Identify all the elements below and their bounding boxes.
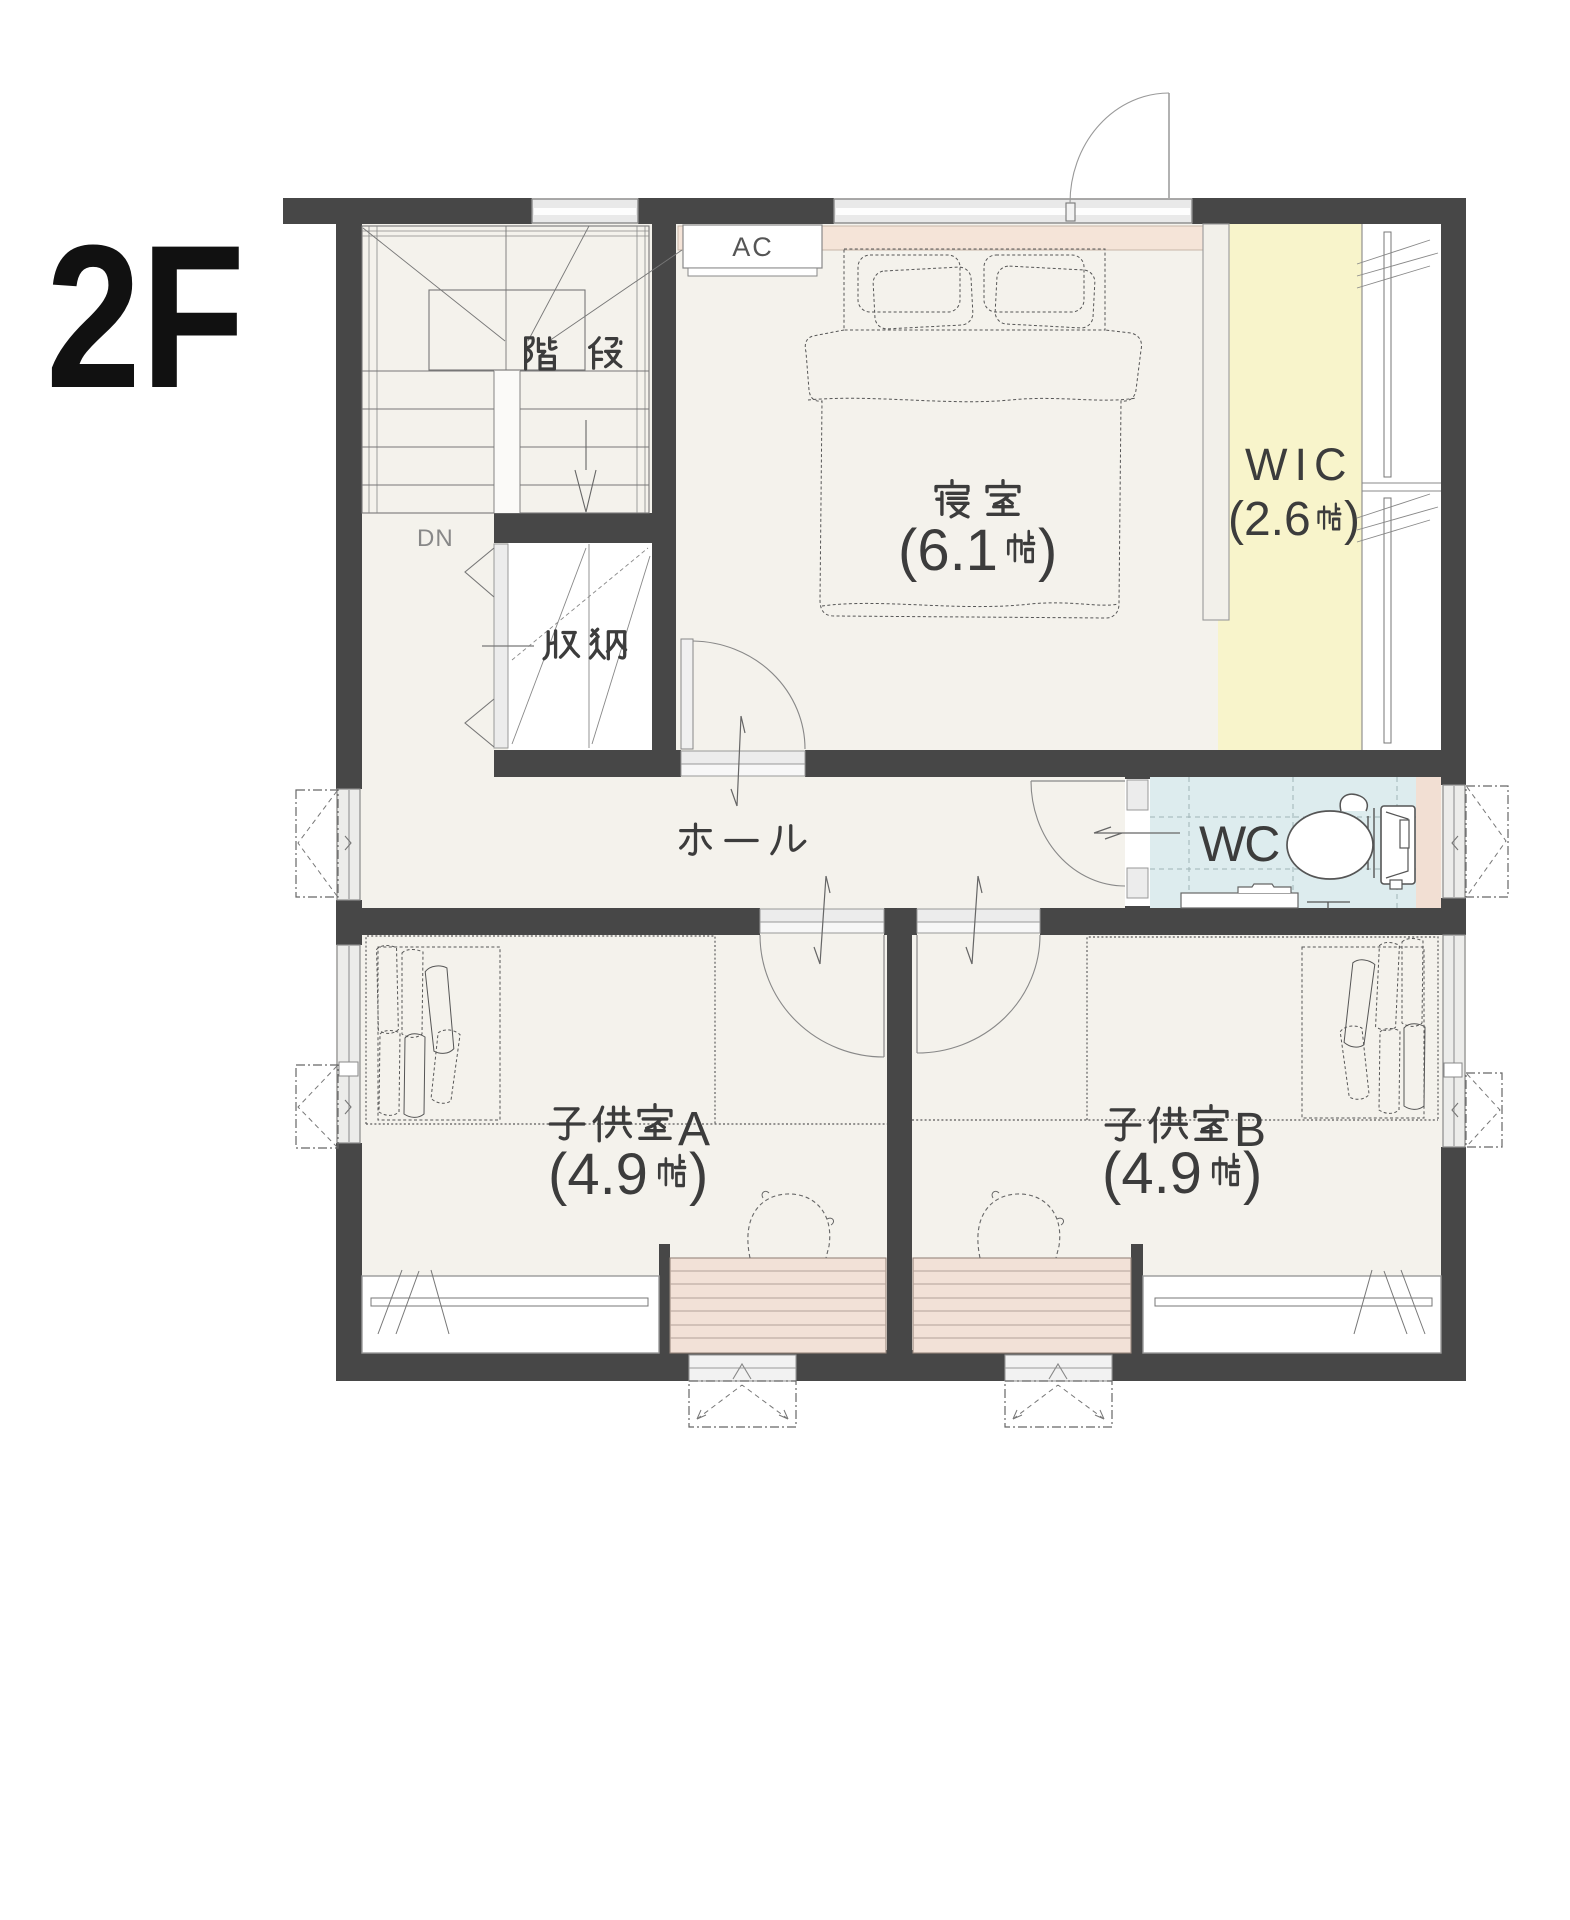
svg-text:(4.9: (4.9 xyxy=(548,1142,648,1207)
svg-text:): ) xyxy=(1243,1141,1262,1206)
svg-text:WIC: WIC xyxy=(1245,439,1353,490)
svg-text:(6.1: (6.1 xyxy=(898,518,998,583)
svg-text:): ) xyxy=(1038,518,1057,583)
svg-text:DN: DN xyxy=(417,525,454,552)
svg-text:): ) xyxy=(1344,493,1360,546)
svg-text:AC: AC xyxy=(732,232,774,262)
svg-text:): ) xyxy=(689,1142,708,1207)
svg-text:(2.6: (2.6 xyxy=(1228,493,1311,546)
svg-text:2F: 2F xyxy=(46,203,245,431)
svg-text:(4.9: (4.9 xyxy=(1102,1141,1202,1206)
svg-text:WC: WC xyxy=(1199,816,1279,872)
